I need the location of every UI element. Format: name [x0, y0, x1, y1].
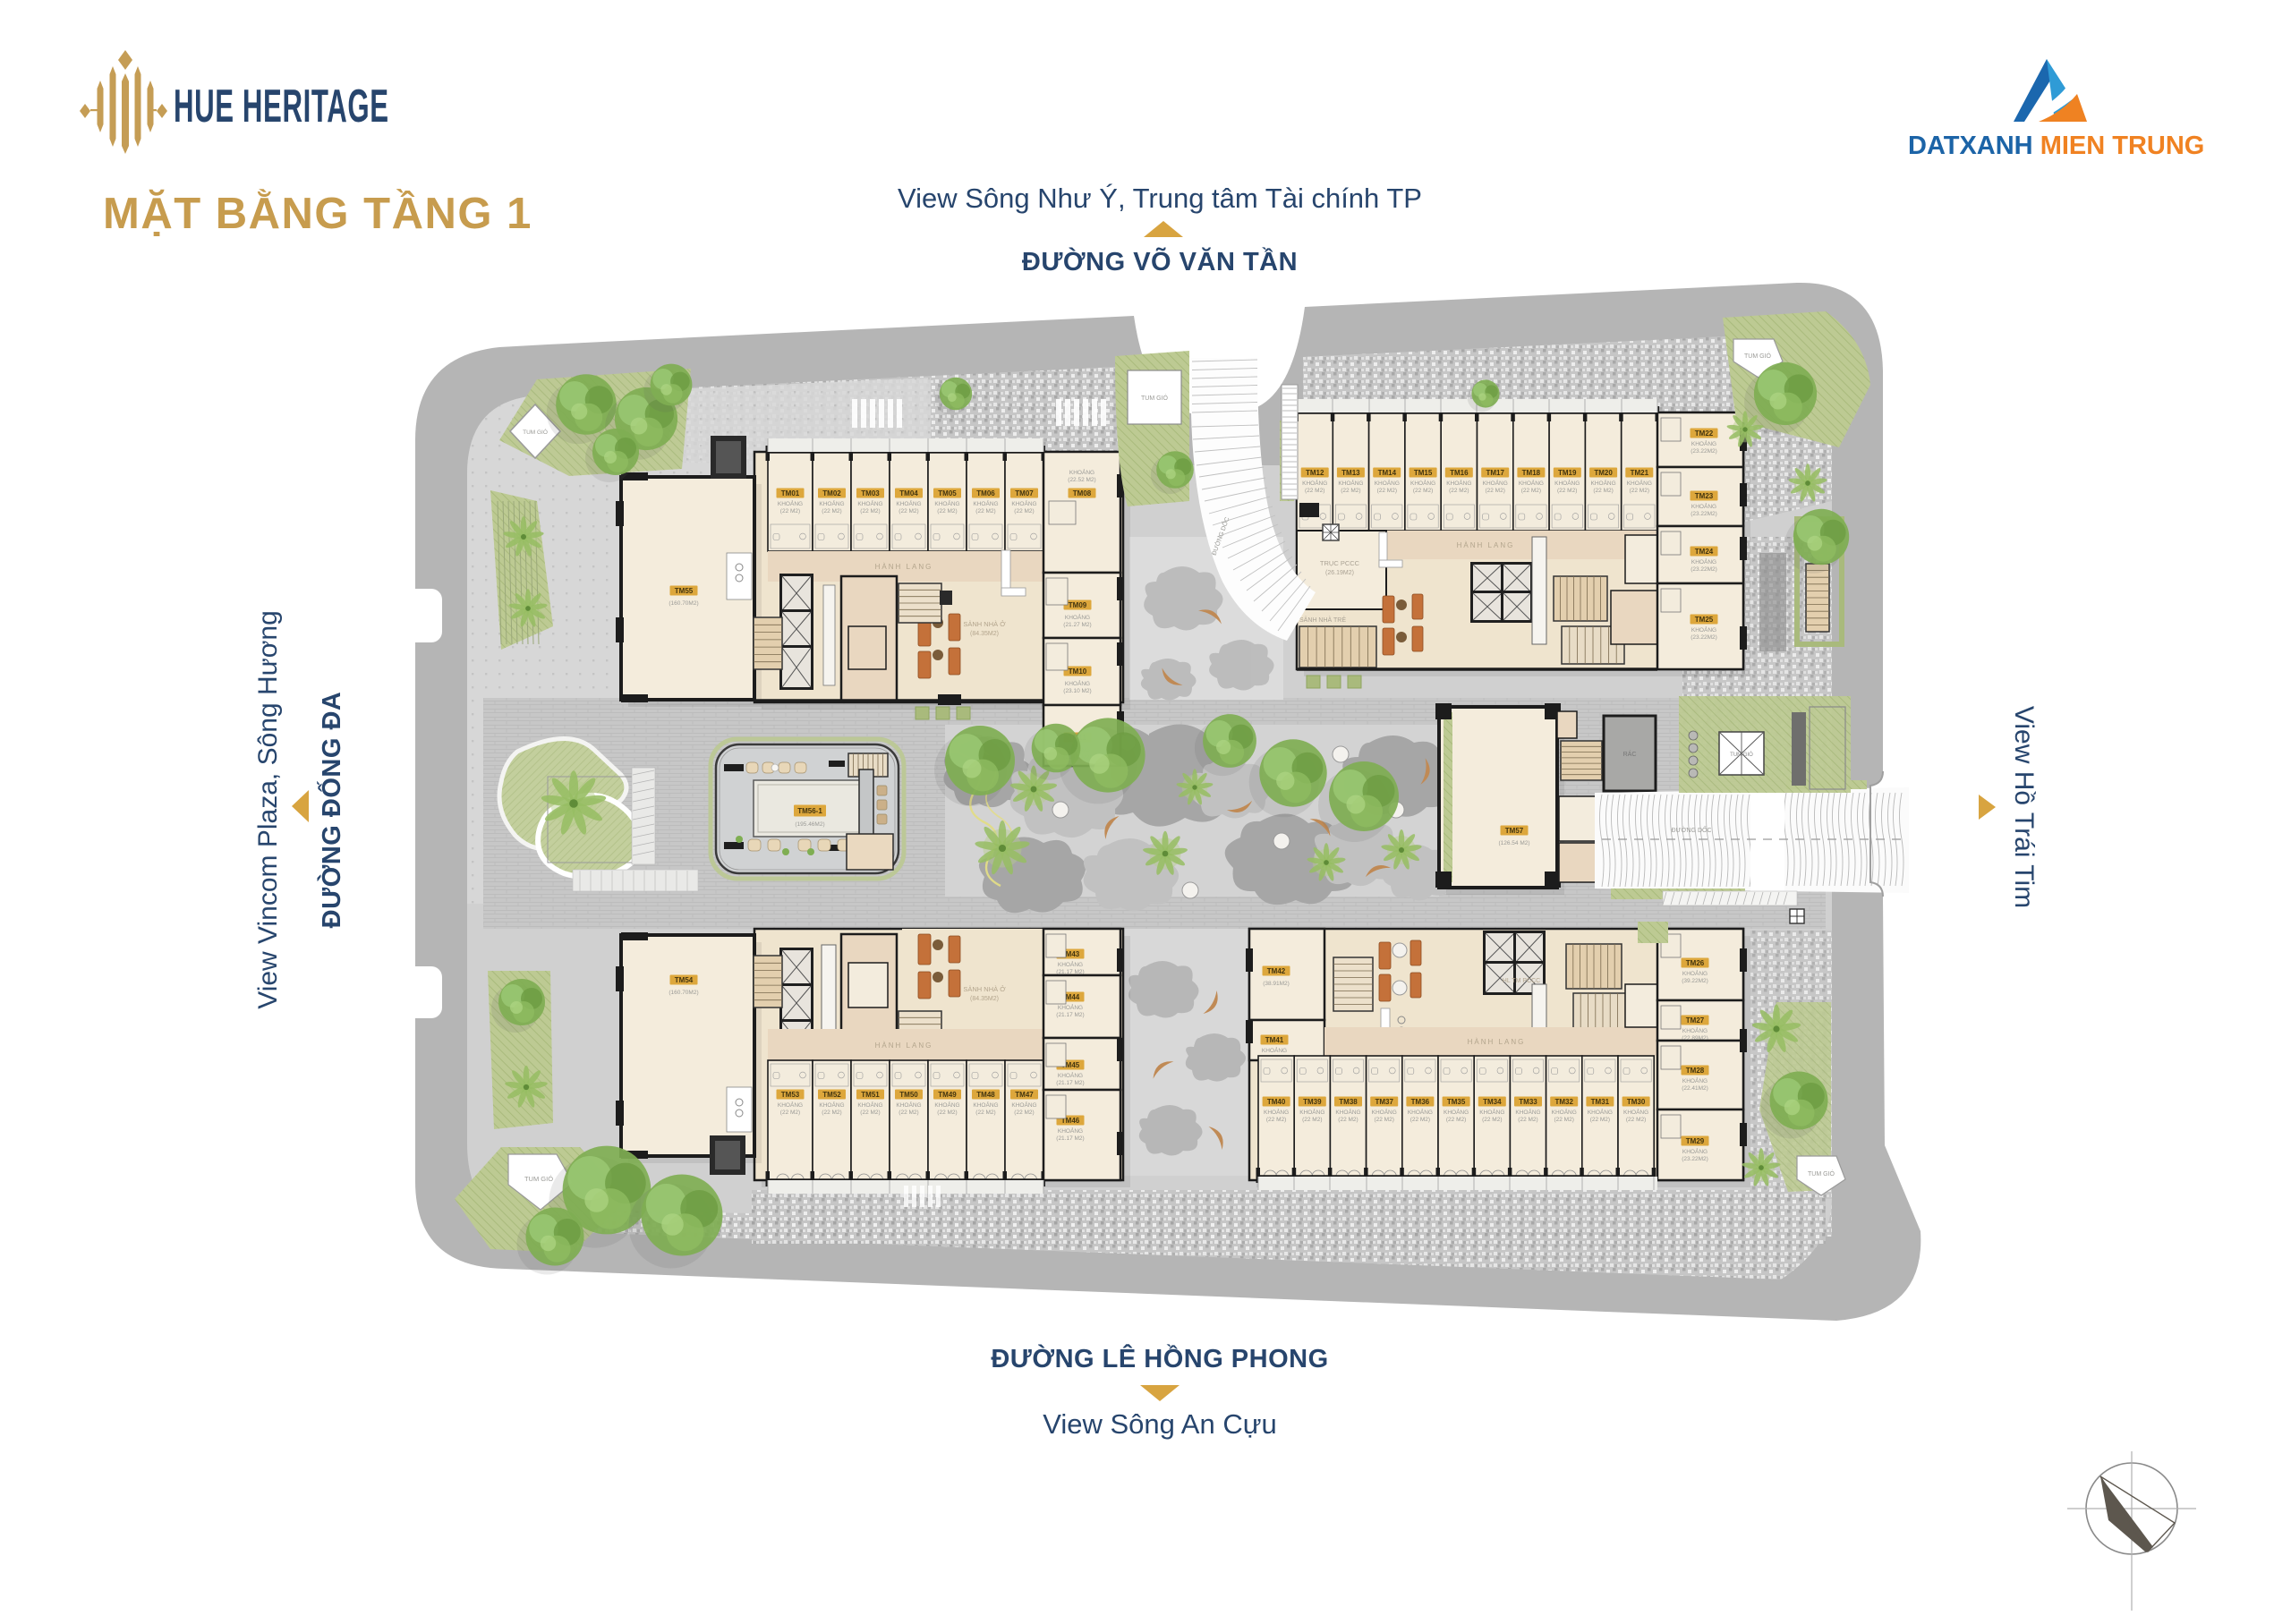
svg-text:KHOẢNG: KHOẢNG: [1479, 1108, 1504, 1116]
svg-text:View Sông Như Ý, Trung tâm Tài: View Sông Như Ý, Trung tâm Tài chính TP: [898, 183, 1422, 214]
svg-text:View Sông An Cựu: View Sông An Cựu: [1043, 1408, 1276, 1440]
svg-text:KHOẢNG: KHOẢNG: [1691, 625, 1716, 633]
svg-text:(22 M2): (22 M2): [1341, 488, 1360, 494]
svg-text:TRỤC PCCC: TRỤC PCCC: [1320, 559, 1360, 567]
svg-text:TM02: TM02: [822, 489, 841, 497]
svg-text:KHOẢNG: KHOẢNG: [1515, 1108, 1540, 1116]
svg-text:(22 M2): (22 M2): [1557, 488, 1577, 494]
svg-text:(22 M2): (22 M2): [975, 1110, 995, 1116]
svg-text:(22 M2): (22 M2): [780, 1110, 800, 1116]
svg-text:KHOẢNG: KHOẢNG: [1069, 468, 1094, 476]
svg-text:(84.35M2): (84.35M2): [970, 631, 999, 637]
svg-text:(22 M2): (22 M2): [1305, 488, 1324, 494]
svg-text:TM23: TM23: [1695, 492, 1714, 500]
svg-text:(195.46M2): (195.46M2): [795, 821, 824, 828]
svg-text:TUM GIÓ: TUM GIÓ: [1141, 394, 1168, 402]
svg-text:KHOẢNG: KHOẢNG: [1262, 1046, 1287, 1054]
svg-text:TM13: TM13: [1341, 469, 1360, 477]
svg-text:KHOẢNG: KHOẢNG: [1691, 439, 1716, 447]
svg-text:KHOẢNG: KHOẢNG: [896, 1101, 921, 1109]
svg-text:(22 M2): (22 M2): [822, 508, 841, 514]
svg-text:(23.10 M2): (23.10 M2): [1063, 688, 1091, 694]
svg-text:(22 M2): (22 M2): [1302, 1117, 1322, 1123]
svg-text:KHOẢNG: KHOẢNG: [1682, 1076, 1708, 1084]
svg-text:(22 M2): (22 M2): [1410, 1117, 1430, 1123]
svg-text:(22 M2): (22 M2): [1266, 1117, 1286, 1123]
svg-text:View Vincom Plaza, Sông Hương: View Vincom Plaza, Sông Hương: [253, 610, 283, 1009]
svg-text:TM57: TM57: [1505, 827, 1524, 835]
svg-text:KHOẢNG: KHOẢNG: [1058, 960, 1083, 968]
svg-text:(22 M2): (22 M2): [937, 1110, 957, 1116]
svg-text:TM15: TM15: [1414, 469, 1433, 477]
svg-text:TM53: TM53: [781, 1091, 800, 1099]
svg-text:HÀNH LANG: HÀNH LANG: [875, 563, 933, 571]
svg-text:HL TM PCCC: HL TM PCCC: [1503, 978, 1540, 984]
svg-text:HUE HERITAGE: HUE HERITAGE: [174, 81, 389, 132]
svg-text:TM12: TM12: [1306, 469, 1324, 477]
svg-text:KHOẢNG: KHOẢNG: [1588, 1108, 1613, 1116]
svg-text:KHOẢNG: KHOẢNG: [1410, 479, 1435, 487]
svg-text:(22 M2): (22 M2): [1374, 1117, 1393, 1123]
svg-text:(21.17 M2): (21.17 M2): [1056, 1135, 1084, 1142]
svg-text:TM28: TM28: [1686, 1067, 1705, 1075]
svg-text:KHOẢNG: KHOẢNG: [1691, 557, 1716, 565]
svg-text:(22 M2): (22 M2): [1554, 1117, 1573, 1123]
svg-text:KHOẢNG: KHOẢNG: [819, 1101, 844, 1109]
svg-text:KHOẢNG: KHOẢNG: [1011, 1101, 1036, 1109]
svg-text:TM42: TM42: [1267, 967, 1286, 975]
svg-text:View Hồ Trái Tim: View Hồ Trái Tim: [2009, 706, 2039, 908]
svg-text:(22 M2): (22 M2): [1014, 1110, 1034, 1116]
svg-text:TUM GIÓ: TUM GIÓ: [1744, 352, 1771, 360]
svg-text:TM18: TM18: [1522, 469, 1541, 477]
svg-text:TM32: TM32: [1554, 1098, 1573, 1106]
svg-text:KHOẢNG: KHOẢNG: [896, 499, 921, 507]
svg-text:KHOẢNG: KHOẢNG: [1682, 1026, 1708, 1034]
svg-text:(22.52 M2): (22.52 M2): [1068, 477, 1095, 483]
svg-text:(22 M2): (22 M2): [860, 508, 880, 514]
svg-text:TM01: TM01: [781, 489, 800, 497]
svg-text:KHOẢNG: KHOẢNG: [819, 499, 844, 507]
svg-text:ĐƯỜNG LÊ HỒNG PHONG: ĐƯỜNG LÊ HỒNG PHONG: [991, 1343, 1328, 1373]
svg-text:TM30: TM30: [1627, 1098, 1646, 1106]
svg-text:KHOẢNG: KHOẢNG: [1372, 1108, 1397, 1116]
svg-text:TM52: TM52: [822, 1091, 841, 1099]
svg-text:(22 M2): (22 M2): [937, 508, 957, 514]
svg-text:SẢNH NHÀ TRẺ: SẢNH NHÀ TRẺ: [1299, 616, 1346, 624]
svg-text:(22 M2): (22 M2): [1482, 1117, 1502, 1123]
svg-text:TM19: TM19: [1558, 469, 1577, 477]
svg-text:KHOẢNG: KHOẢNG: [1408, 1108, 1433, 1116]
svg-text:(126.54 M2): (126.54 M2): [1498, 840, 1529, 846]
svg-text:TM03: TM03: [861, 489, 880, 497]
svg-text:(22 M2): (22 M2): [1014, 508, 1034, 514]
svg-text:KHOẢNG: KHOẢNG: [1375, 479, 1400, 487]
svg-text:TM54: TM54: [675, 976, 694, 984]
svg-text:KHOẢNG: KHOẢNG: [778, 1101, 803, 1109]
svg-text:(22 M2): (22 M2): [899, 1110, 918, 1116]
svg-text:(22 M2): (22 M2): [975, 508, 995, 514]
svg-text:TM48: TM48: [976, 1091, 995, 1099]
svg-text:(84.35M2): (84.35M2): [970, 996, 999, 1002]
svg-text:KHOẢNG: KHOẢNG: [1591, 479, 1616, 487]
svg-text:KHOẢNG: KHOẢNG: [1065, 679, 1090, 687]
svg-text:TM22: TM22: [1695, 429, 1714, 438]
svg-text:TM34: TM34: [1483, 1098, 1502, 1106]
svg-text:TM04: TM04: [899, 489, 918, 497]
svg-text:KHOẢNG: KHOẢNG: [1623, 1108, 1648, 1116]
svg-text:(160.70M2): (160.70M2): [669, 600, 698, 607]
svg-text:(22 M2): (22 M2): [1593, 488, 1613, 494]
svg-text:(22 M2): (22 M2): [1485, 488, 1504, 494]
svg-text:(38.91M2): (38.91M2): [1263, 981, 1290, 987]
svg-text:TM24: TM24: [1695, 548, 1714, 556]
svg-text:(22 M2): (22 M2): [1518, 1117, 1537, 1123]
svg-text:(22 M2): (22 M2): [1521, 488, 1541, 494]
svg-text:KHOẢNG: KHOẢNG: [934, 499, 959, 507]
svg-text:TM39: TM39: [1303, 1098, 1322, 1106]
svg-text:KHOẢNG: KHOẢNG: [1302, 479, 1327, 487]
svg-text:(22 M2): (22 M2): [780, 508, 800, 514]
svg-text:TM05: TM05: [938, 489, 957, 497]
svg-text:TM25: TM25: [1695, 616, 1714, 624]
svg-text:TM16: TM16: [1450, 469, 1469, 477]
svg-text:TUM GIÓ: TUM GIÓ: [1808, 1169, 1835, 1178]
svg-text:TM36: TM36: [1411, 1098, 1430, 1106]
svg-text:(23.22M2): (23.22M2): [1691, 448, 1717, 455]
svg-text:(160.70M2): (160.70M2): [669, 990, 698, 996]
svg-text:TM50: TM50: [899, 1091, 918, 1099]
svg-text:ĐƯỜNG VÕ VĂN TẦN: ĐƯỜNG VÕ VĂN TẦN: [1022, 246, 1298, 276]
svg-text:TM40: TM40: [1267, 1098, 1286, 1106]
svg-text:KHOẢNG: KHOẢNG: [973, 499, 998, 507]
svg-text:(39.22M2): (39.22M2): [1682, 978, 1708, 984]
svg-text:HÀNH LANG: HÀNH LANG: [875, 1042, 933, 1050]
svg-text:(23.22M2): (23.22M2): [1691, 634, 1717, 641]
svg-text:(22 M2): (22 M2): [1377, 488, 1397, 494]
svg-text:KHOẢNG: KHOẢNG: [1335, 1108, 1360, 1116]
svg-text:KHOẢNG: KHOẢNG: [1554, 479, 1580, 487]
svg-text:KHOẢNG: KHOẢNG: [1519, 479, 1544, 487]
svg-text:KHOẢNG: KHOẢNG: [1011, 499, 1036, 507]
svg-text:TM26: TM26: [1686, 959, 1705, 967]
svg-text:TM38: TM38: [1339, 1098, 1358, 1106]
svg-text:TM35: TM35: [1447, 1098, 1466, 1106]
svg-text:TM29: TM29: [1686, 1137, 1705, 1145]
svg-text:(22 M2): (22 M2): [1413, 488, 1433, 494]
svg-text:TUM GIÓ: TUM GIÓ: [524, 1175, 553, 1183]
svg-text:TUM GIÓ: TUM GIÓ: [523, 428, 548, 436]
svg-text:TM10: TM10: [1069, 667, 1087, 676]
svg-text:TM55: TM55: [675, 587, 694, 595]
svg-text:(26.19M2): (26.19M2): [1325, 570, 1354, 576]
svg-text:TM08: TM08: [1073, 489, 1092, 497]
svg-text:(21.17 M2): (21.17 M2): [1056, 1080, 1084, 1086]
svg-text:TM37: TM37: [1375, 1098, 1393, 1106]
svg-text:ĐƯỜNG ĐỐNG ĐA: ĐƯỜNG ĐỐNG ĐA: [316, 692, 346, 929]
svg-text:KHOẢNG: KHOẢNG: [1682, 1147, 1708, 1155]
svg-text:(22 M2): (22 M2): [1590, 1117, 1610, 1123]
svg-text:RÁC: RÁC: [1623, 750, 1637, 758]
svg-text:TM09: TM09: [1069, 601, 1087, 609]
svg-text:TM31: TM31: [1591, 1098, 1610, 1106]
svg-text:KHOẢNG: KHOẢNG: [1627, 479, 1652, 487]
svg-text:TM06: TM06: [976, 489, 995, 497]
svg-text:MẶT BẰNG TẦNG 1: MẶT BẰNG TẦNG 1: [103, 190, 532, 238]
svg-text:(22 M2): (22 M2): [860, 1110, 880, 1116]
svg-text:KHOẢNG: KHOẢNG: [1682, 969, 1708, 977]
svg-text:TM07: TM07: [1015, 489, 1034, 497]
svg-text:(23.22M2): (23.22M2): [1691, 511, 1717, 517]
svg-text:(21.27 M2): (21.27 M2): [1063, 622, 1091, 628]
svg-text:(22 M2): (22 M2): [822, 1110, 841, 1116]
svg-text:TUM GIÓ: TUM GIÓ: [1730, 752, 1753, 758]
svg-text:(22 M2): (22 M2): [1630, 488, 1649, 494]
svg-text:TM47: TM47: [1015, 1091, 1034, 1099]
svg-text:TM17: TM17: [1486, 469, 1504, 477]
svg-text:KHOẢNG: KHOẢNG: [1691, 502, 1716, 510]
svg-text:DATXANH MIEN TRUNG: DATXANH MIEN TRUNG: [1908, 132, 2204, 160]
svg-text:KHOẢNG: KHOẢNG: [1446, 479, 1471, 487]
svg-text:TM21: TM21: [1631, 469, 1649, 477]
svg-text:KHOẢNG: KHOẢNG: [1299, 1108, 1324, 1116]
svg-text:TM27: TM27: [1686, 1016, 1705, 1025]
svg-text:SẢNH NHÀ Ở: SẢNH NHÀ Ở: [963, 985, 1006, 993]
svg-text:(22.41M2): (22.41M2): [1682, 1085, 1708, 1092]
svg-text:(23.22M2): (23.22M2): [1691, 566, 1717, 573]
svg-text:KHOẢNG: KHOẢNG: [778, 499, 803, 507]
svg-text:KHOẢNG: KHOẢNG: [1264, 1108, 1289, 1116]
svg-text:TM51: TM51: [861, 1091, 880, 1099]
svg-text:TM41: TM41: [1265, 1036, 1284, 1044]
svg-text:KHOẢNG: KHOẢNG: [1338, 479, 1363, 487]
svg-text:(22 M2): (22 M2): [1446, 1117, 1466, 1123]
svg-text:(21.17 M2): (21.17 M2): [1056, 1012, 1084, 1018]
svg-text:KHOẢNG: KHOẢNG: [1065, 613, 1090, 621]
svg-text:TM20: TM20: [1594, 469, 1613, 477]
svg-text:(22 M2): (22 M2): [1626, 1117, 1646, 1123]
svg-text:(23.22M2): (23.22M2): [1682, 1156, 1708, 1162]
svg-text:(22 M2): (22 M2): [1338, 1117, 1358, 1123]
svg-text:KHOẢNG: KHOẢNG: [1444, 1108, 1469, 1116]
svg-text:KHOẢNG: KHOẢNG: [1483, 479, 1508, 487]
svg-text:KHOẢNG: KHOẢNG: [857, 499, 882, 507]
svg-text:KHOẢNG: KHOẢNG: [934, 1101, 959, 1109]
svg-text:SẢNH NHÀ Ở: SẢNH NHÀ Ở: [963, 620, 1006, 628]
svg-text:(22 M2): (22 M2): [899, 508, 918, 514]
svg-text:TM33: TM33: [1519, 1098, 1537, 1106]
svg-text:KHOẢNG: KHOẢNG: [1058, 1127, 1083, 1135]
svg-text:HÀNH LANG: HÀNH LANG: [1457, 541, 1515, 549]
svg-text:HÀNH LANG: HÀNH LANG: [1468, 1038, 1526, 1046]
svg-text:KHOẢNG: KHOẢNG: [1058, 1071, 1083, 1079]
svg-text:KHOẢNG: KHOẢNG: [857, 1101, 882, 1109]
svg-text:KHOẢNG: KHOẢNG: [1552, 1108, 1577, 1116]
svg-text:(22 M2): (22 M2): [1449, 488, 1469, 494]
svg-text:TM14: TM14: [1378, 469, 1397, 477]
svg-text:KHOẢNG: KHOẢNG: [973, 1101, 998, 1109]
svg-text:TM56-1: TM56-1: [797, 807, 822, 815]
svg-text:TM49: TM49: [938, 1091, 957, 1099]
